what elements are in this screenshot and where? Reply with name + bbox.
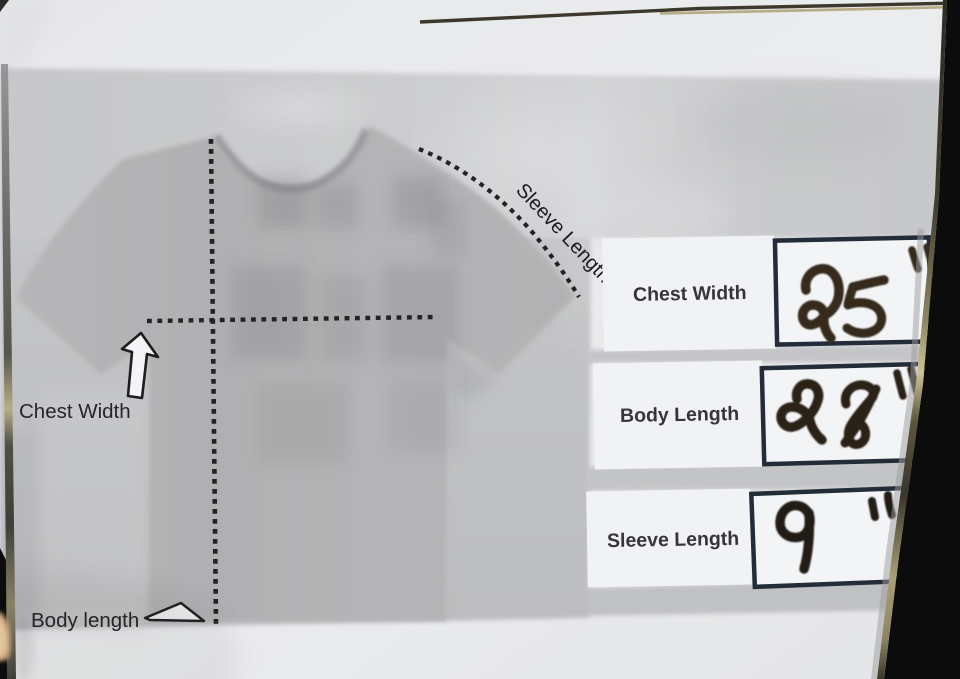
svg-text:Chest Width: Chest Width xyxy=(19,400,131,423)
svg-text:Chest Width: Chest Width xyxy=(633,282,747,306)
svg-text:Sleeve Length: Sleeve Length xyxy=(607,528,740,552)
svg-text:Body Length: Body Length xyxy=(620,403,740,427)
